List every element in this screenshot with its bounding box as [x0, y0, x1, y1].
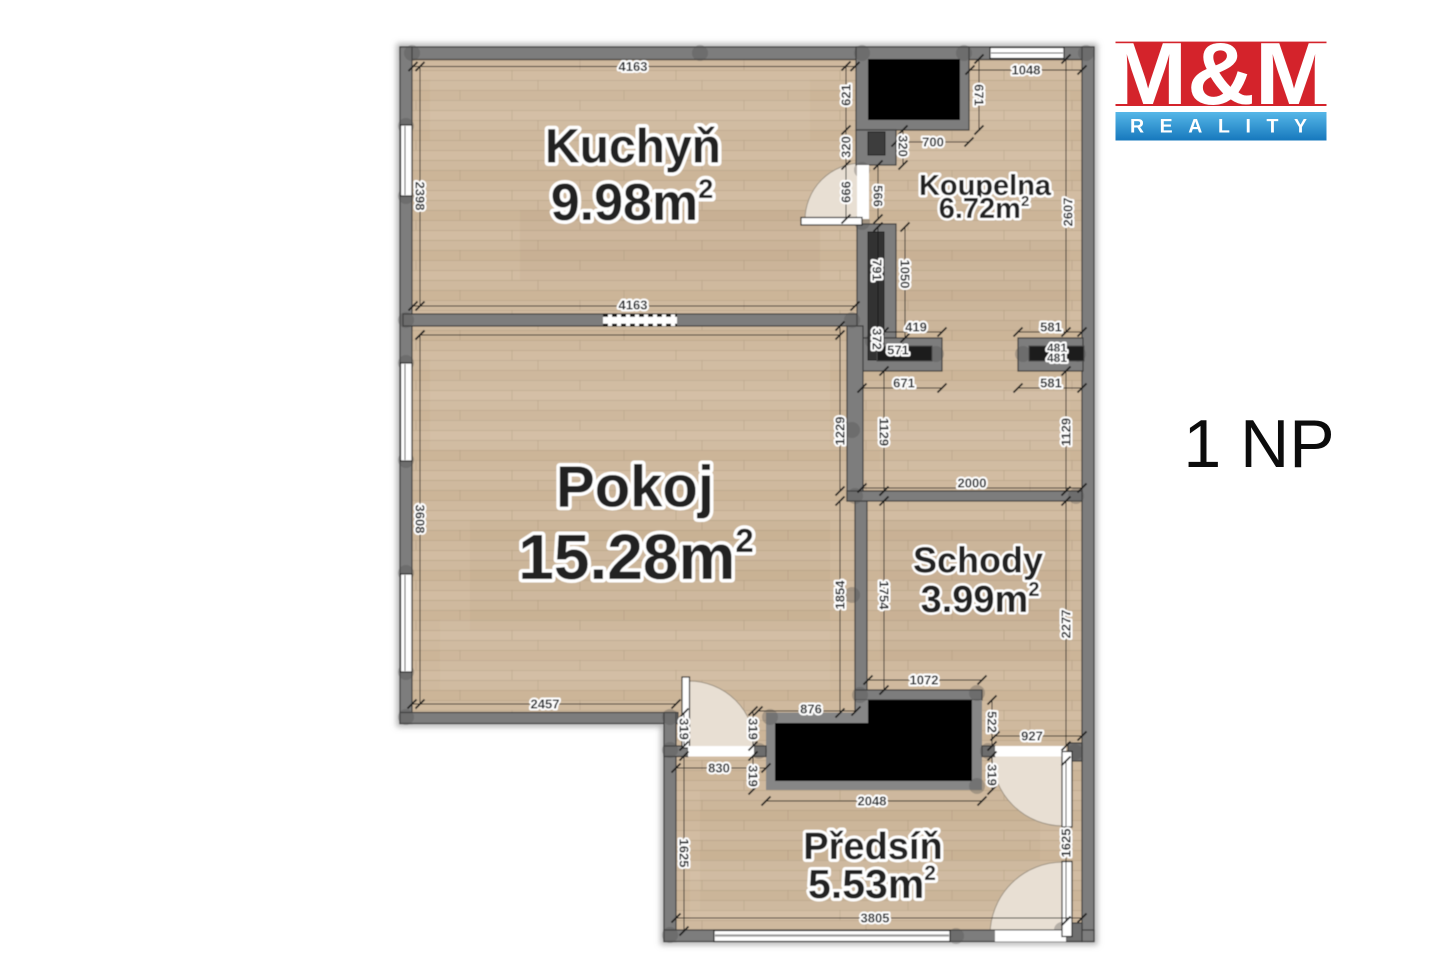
svg-text:1625: 1625 — [677, 839, 692, 868]
svg-text:419: 419 — [905, 320, 927, 335]
svg-text:581: 581 — [1040, 320, 1062, 335]
svg-text:319: 319 — [746, 765, 761, 787]
svg-text:830: 830 — [708, 761, 730, 776]
svg-text:566: 566 — [871, 185, 886, 207]
svg-text:671: 671 — [893, 376, 915, 391]
svg-text:2277: 2277 — [1059, 610, 1074, 639]
svg-text:6.72m2: 6.72m2 — [939, 193, 1030, 226]
svg-text:2398: 2398 — [413, 182, 428, 211]
svg-text:1072: 1072 — [910, 673, 939, 688]
svg-text:372: 372 — [870, 328, 885, 350]
svg-text:522: 522 — [985, 711, 1000, 733]
svg-text:319: 319 — [677, 718, 692, 740]
svg-text:320: 320 — [896, 135, 911, 157]
svg-text:319: 319 — [985, 764, 1000, 786]
svg-text:666: 666 — [839, 181, 854, 203]
svg-text:1129: 1129 — [877, 418, 892, 446]
svg-text:2607: 2607 — [1061, 198, 1076, 227]
svg-text:3608: 3608 — [413, 505, 428, 534]
svg-text:876: 876 — [800, 702, 822, 717]
svg-text:2000: 2000 — [958, 476, 987, 491]
svg-text:700: 700 — [922, 135, 944, 150]
svg-text:3.99m2: 3.99m2 — [921, 579, 1040, 621]
svg-text:2457: 2457 — [531, 697, 560, 712]
svg-text:3805: 3805 — [861, 911, 890, 926]
svg-text:Kuchyň: Kuchyň — [545, 121, 721, 174]
svg-text:1129: 1129 — [1059, 418, 1074, 446]
svg-text:Pokoj: Pokoj — [556, 455, 714, 520]
svg-text:320: 320 — [839, 136, 854, 158]
svg-text:M&M: M&M — [1109, 24, 1333, 123]
svg-text:4163: 4163 — [619, 298, 648, 313]
svg-text:791: 791 — [870, 259, 885, 281]
svg-text:1229: 1229 — [833, 417, 848, 446]
svg-text:621: 621 — [839, 84, 854, 106]
svg-text:1854: 1854 — [833, 580, 848, 610]
svg-text:9.98m2: 9.98m2 — [551, 174, 713, 232]
svg-text:1 NP: 1 NP — [1183, 406, 1334, 482]
svg-text:5.53m2: 5.53m2 — [808, 861, 936, 907]
svg-text:1048: 1048 — [1012, 63, 1041, 78]
svg-text:REALITY: REALITY — [1130, 116, 1323, 138]
svg-text:319: 319 — [746, 718, 761, 740]
svg-text:1754: 1754 — [877, 581, 892, 611]
svg-text:927: 927 — [1021, 729, 1043, 744]
svg-text:571: 571 — [887, 343, 909, 358]
svg-text:581: 581 — [1040, 376, 1062, 391]
svg-text:4163: 4163 — [619, 59, 648, 74]
svg-text:1050: 1050 — [898, 260, 913, 289]
svg-text:481: 481 — [1047, 351, 1067, 365]
svg-text:Schody: Schody — [913, 540, 1043, 581]
svg-text:2048: 2048 — [858, 794, 887, 809]
svg-text:15.28m2: 15.28m2 — [518, 521, 753, 593]
svg-text:671: 671 — [972, 84, 987, 106]
svg-text:1625: 1625 — [1059, 829, 1074, 858]
